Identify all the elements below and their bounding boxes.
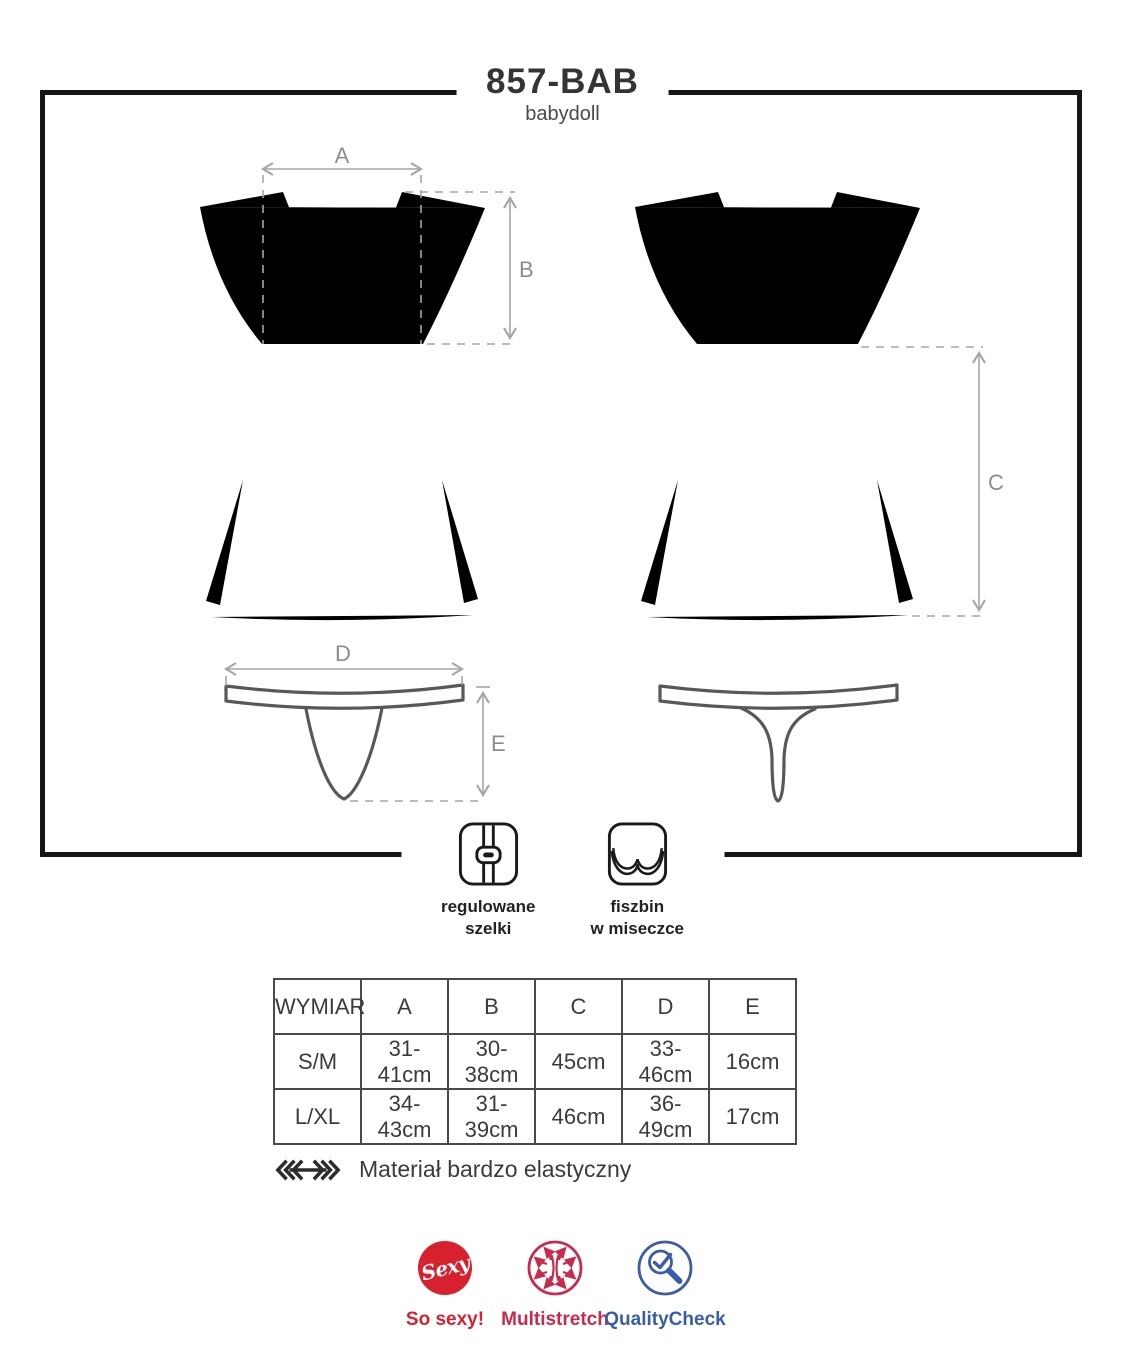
badge-multistretch: Multistretch (500, 1238, 610, 1331)
size-value: 31-41cm (361, 1034, 448, 1089)
size-table-header-cell: E (709, 979, 796, 1034)
badge-so-sexy: Sexy So sexy! (390, 1238, 500, 1331)
stretch-arrow-icon (272, 1157, 344, 1183)
feature-label-line2: szelki (441, 918, 535, 940)
sexy-script-text: Sexy (418, 1250, 471, 1285)
feature-label-line1: regulowane (441, 896, 535, 918)
size-table-header-cell: D (622, 979, 709, 1034)
size-value: 17cm (709, 1089, 796, 1144)
multistretch-arrows-icon (526, 1239, 584, 1297)
diagram-frame (40, 90, 1082, 857)
size-label: L/XL (274, 1089, 361, 1144)
size-value: 45cm (535, 1034, 622, 1089)
size-table-header-cell: B (448, 979, 535, 1034)
size-table-header-cell: WYMIAR (274, 979, 361, 1034)
badge-label: Multistretch (501, 1309, 609, 1331)
size-value: 31-39cm (448, 1089, 535, 1144)
material-note: Materiał bardzo elastyczny (272, 1156, 631, 1183)
quality-check-magnifier-icon (636, 1239, 694, 1297)
product-type: babydoll (486, 103, 639, 126)
feature-label-line2: w miseczce (590, 918, 684, 940)
size-value: 36-49cm (622, 1089, 709, 1144)
size-value: 34-43cm (361, 1089, 448, 1144)
adjustable-straps-icon (457, 821, 519, 887)
product-model: 857-BAB (486, 63, 639, 102)
feature-label: regulowane szelki (441, 896, 535, 940)
badge-label: So sexy! (406, 1309, 484, 1331)
feature-label: fiszbin w miseczce (590, 896, 684, 940)
feature-icons-row: regulowane szelki fiszbin w miseczce (401, 821, 724, 940)
badge-label: QualityCheck (604, 1309, 725, 1331)
material-note-text: Materiał bardzo elastyczny (359, 1156, 631, 1183)
size-table-row-sm: S/M 31-41cm 30-38cm 45cm 33-46cm 16cm (274, 1034, 796, 1089)
product-size-sheet: 857-BAB babydoll (0, 0, 1125, 1360)
feature-underwire-cup: fiszbin w miseczce (590, 821, 684, 940)
size-value: 30-38cm (448, 1034, 535, 1089)
title-block: 857-BAB babydoll (456, 63, 669, 126)
size-value: 33-46cm (622, 1034, 709, 1089)
size-value: 16cm (709, 1034, 796, 1089)
brand-badges: Sexy So sexy! (390, 1238, 720, 1331)
underwire-cup-icon (606, 821, 668, 887)
badge-quality-check: QualityCheck (610, 1238, 720, 1331)
size-table-header-cell: A (361, 979, 448, 1034)
size-value: 46cm (535, 1089, 622, 1144)
size-table-header-row: WYMIAR A B C D E (274, 979, 796, 1034)
size-table-header-cell: C (535, 979, 622, 1034)
sexy-dot-icon: Sexy (418, 1241, 472, 1295)
size-table: WYMIAR A B C D E S/M 31-41cm 30-38cm 45c… (273, 978, 797, 1145)
size-table-row-lxl: L/XL 34-43cm 31-39cm 46cm 36-49cm 17cm (274, 1089, 796, 1144)
feature-adjustable-straps: regulowane szelki (441, 821, 535, 940)
feature-label-line1: fiszbin (590, 896, 684, 918)
size-label: S/M (274, 1034, 361, 1089)
